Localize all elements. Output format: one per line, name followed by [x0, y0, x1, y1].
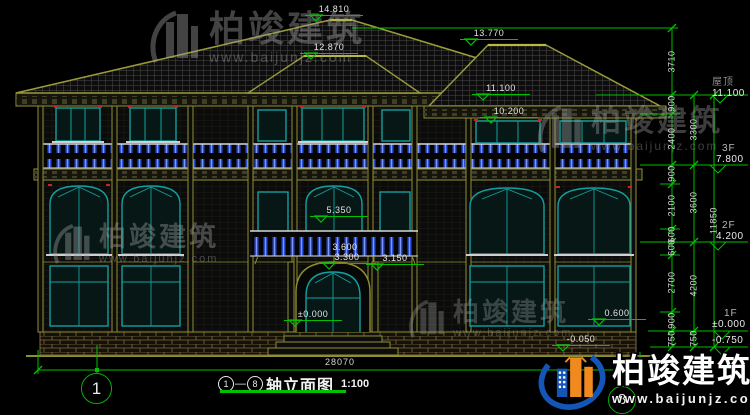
dim-3600: 3600	[689, 175, 700, 231]
elevation-marker-dormer-ridge: 12.870	[300, 43, 358, 54]
cad-elevation-screenshot: 柏竣建筑 www.baijunjz.com 柏竣建筑 www.baijunjz.…	[0, 0, 750, 415]
elevation-marker-0600: 0.600	[588, 309, 646, 320]
watermark-logo-icon	[406, 294, 448, 344]
floor-flag-basement: -0.750	[712, 335, 743, 346]
dim-total-width: 28070	[309, 357, 371, 367]
elevation-marker-entry-zero: ±0.000	[284, 310, 342, 321]
dim-11850: 11850	[709, 193, 720, 249]
elevation-marker-peak: 14.810	[305, 5, 363, 16]
watermark-brand: 柏竣建筑	[99, 224, 219, 251]
axis-bubble-1: 1	[81, 373, 112, 404]
elevation-marker-3150: 3.150	[366, 254, 424, 265]
dim-4200: 4200	[689, 258, 700, 314]
title-underline	[220, 390, 346, 393]
elevation-marker-5350: 5.350	[310, 206, 368, 217]
watermark-brand: 柏竣建筑	[453, 299, 572, 325]
floor-flag-2f: 2F 4.200	[722, 220, 744, 242]
title-scale: 1:100	[341, 378, 369, 390]
watermark-logo-icon	[50, 218, 94, 270]
watermark-logo-icon	[534, 100, 586, 158]
brand-url[interactable]: www.baijunjz.com	[612, 391, 750, 406]
brand-logo-icon	[536, 346, 608, 414]
floor-flag-3f: 3F 7.800	[722, 143, 744, 165]
entrance-steps	[268, 336, 398, 355]
elevation-marker-right-ridge: 13.770	[460, 29, 518, 40]
watermark-mid-right: 柏竣建筑 www.baijunjz.com	[406, 294, 572, 344]
watermark-url[interactable]: www.baijunjz.com	[591, 140, 723, 152]
elevation-marker-10200: 10.200	[480, 107, 538, 118]
floor-flag-1f: 1F ±0.000	[724, 308, 746, 330]
dim-3300: 3300	[689, 102, 700, 158]
watermark-url[interactable]: www.baijunjz.com	[99, 254, 219, 265]
watermark-brand: 柏竣建筑	[591, 107, 723, 137]
watermark-logo-icon	[146, 6, 204, 68]
brand-name: 柏竣建筑	[612, 354, 750, 387]
watermark-mid-left: 柏竣建筑 www.baijunjz.com	[50, 218, 219, 270]
floor-flag-roof: 屋顶 11.100	[712, 73, 745, 99]
elevation-marker-neg0050: -0.050	[552, 335, 610, 346]
watermark-logo-color: 柏竣建筑 www.baijunjz.com	[536, 346, 750, 414]
title-dash: —	[235, 378, 246, 390]
elevation-marker-eave: 11.100	[472, 84, 530, 95]
